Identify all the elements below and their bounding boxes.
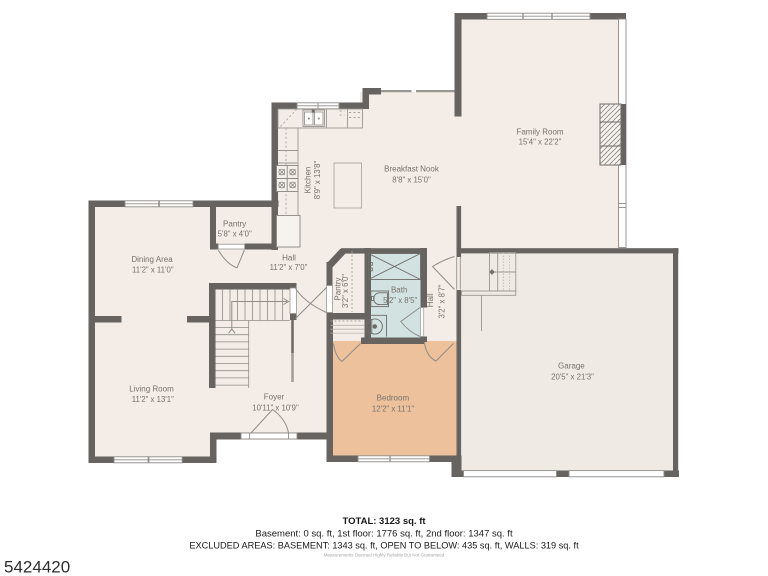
svg-text:TOTAL: 3123 sq. ft: TOTAL: 3123 sq. ft (342, 516, 426, 527)
svg-text:Hall: Hall (282, 253, 296, 262)
svg-text:Living Room: Living Room (129, 385, 174, 394)
svg-text:11'2" x 13'1": 11'2" x 13'1" (132, 395, 174, 404)
svg-text:Breakfast Nook: Breakfast Nook (384, 165, 440, 174)
svg-text:5'8" x 4'0": 5'8" x 4'0" (218, 230, 252, 239)
svg-text:8'8" x 15'0": 8'8" x 15'0" (392, 175, 431, 184)
svg-text:Basement: 0 sq. ft, 1st floor:: Basement: 0 sq. ft, 1st floor: 1776 sq. … (255, 529, 513, 540)
svg-text:5'2" x 8'5": 5'2" x 8'5" (383, 296, 417, 305)
svg-text:Pantry: Pantry (223, 220, 246, 229)
svg-text:15'4" x 22'2": 15'4" x 22'2" (519, 138, 562, 147)
svg-text:Family Room: Family Room (516, 128, 563, 137)
svg-text:20'5" x 21'3": 20'5" x 21'3" (551, 372, 594, 381)
svg-text:3'2" x 6'0": 3'2" x 6'0" (341, 274, 350, 308)
svg-text:5424420: 5424420 (4, 558, 70, 576)
svg-text:Dining Area: Dining Area (131, 255, 173, 264)
svg-text:Foyer: Foyer (264, 392, 285, 401)
svg-text:Garage: Garage (558, 362, 585, 371)
svg-text:11'2" x 11'0": 11'2" x 11'0" (132, 266, 174, 275)
svg-text:10'11" x 10'9": 10'11" x 10'9" (252, 404, 299, 413)
svg-text:Kitchen: Kitchen (304, 167, 313, 194)
svg-text:Measurements Deemed Highly Rel: Measurements Deemed Highly Reliable But … (324, 553, 445, 558)
svg-text:Bath: Bath (391, 286, 407, 295)
svg-text:Hall: Hall (426, 293, 435, 307)
svg-text:EXCLUDED AREAS: BASEMENT: 1343: EXCLUDED AREAS: BASEMENT: 1343 sq. ft, O… (189, 541, 579, 551)
svg-text:11'2" x 7'0": 11'2" x 7'0" (270, 263, 308, 272)
svg-text:Bedroom: Bedroom (377, 394, 410, 403)
svg-text:12'2" x 11'1": 12'2" x 11'1" (372, 405, 414, 414)
svg-text:3'2" x 8'7": 3'2" x 8'7" (438, 284, 447, 318)
svg-text:8'9" x 13'8": 8'9" x 13'8" (313, 161, 322, 200)
